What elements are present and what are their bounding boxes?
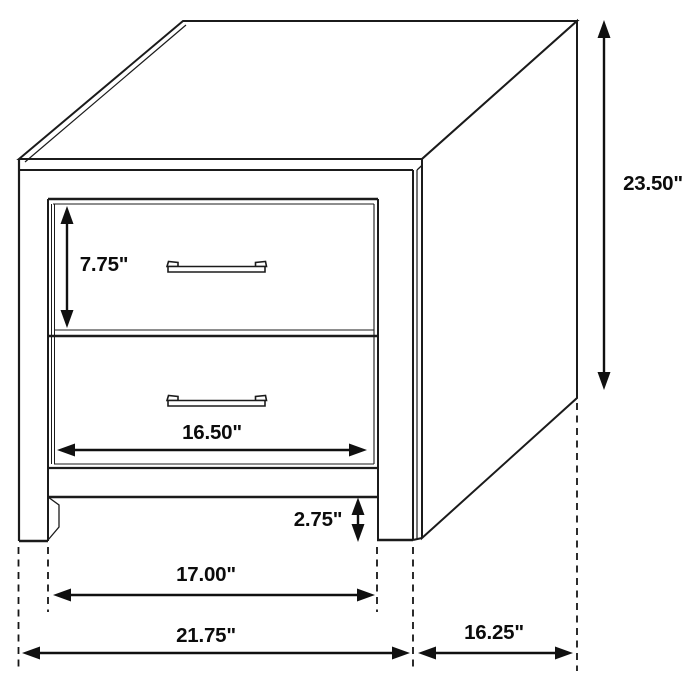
dim-overall-height-label: 23.50"	[623, 174, 683, 195]
dim-drawer-width-arrow	[57, 444, 367, 457]
drawer1-handle-bar	[168, 267, 265, 273]
dim-base-clearance-arrow	[352, 498, 365, 543]
dim-base-clearance-label: 2.75"	[294, 510, 343, 531]
dim-leg-span-label: 17.00"	[176, 565, 236, 586]
dim-drawer-height-label: 7.75"	[80, 255, 129, 276]
dim-drawer-width-label: 16.50"	[182, 423, 242, 444]
left-leg-inner-face	[48, 497, 59, 540]
dim-overall-width-label: 21.75"	[176, 626, 236, 647]
dim-overall-width-arrow	[22, 647, 410, 660]
nightstand-drawing	[0, 0, 700, 700]
dim-drawer-height-arrow	[61, 206, 74, 328]
drawer2-handle-bar	[168, 401, 265, 407]
drawer2-handle	[167, 396, 267, 407]
dim-depth-label: 16.25"	[464, 623, 524, 644]
right-leg-corner-join	[413, 538, 422, 540]
dim-leg-span-arrow	[53, 589, 375, 602]
dim-depth-arrow	[418, 647, 573, 660]
dim-overall-height-arrow	[598, 20, 611, 390]
dimension-diagram: 23.50" 7.75" 16.50" 2.75" 17.00" 21.75" …	[0, 0, 700, 700]
nightstand-body	[19, 21, 577, 541]
drawer1-handle	[167, 262, 267, 273]
